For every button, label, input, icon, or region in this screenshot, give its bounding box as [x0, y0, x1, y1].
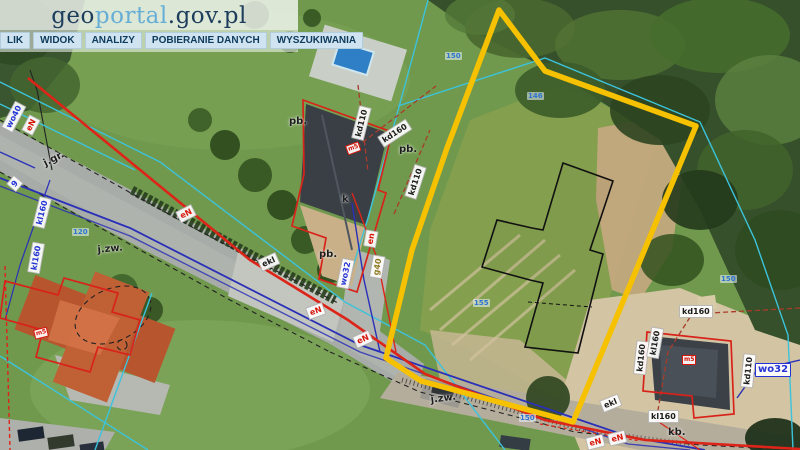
geoportal-logo[interactable]: geoportal.gov.pl — [0, 0, 298, 30]
map-canvas[interactable] — [0, 0, 800, 450]
menu-item-widok[interactable]: WIDOK — [33, 32, 81, 49]
menu-item-analizy[interactable]: ANALIZY — [85, 32, 142, 49]
menu-item-wyszukiwania[interactable]: WYSZUKIWANIA — [270, 32, 363, 49]
menu-bar: LIKWIDOKANALIZYPOBIERANIE DANYCHWYSZUKIW… — [0, 30, 298, 52]
geoportal-map-view[interactable]: wo40eNj.gr.9kl160kl160j.zw.eNeklpb.kpb.k… — [0, 0, 800, 450]
menu-item-pobieranie-danych[interactable]: POBIERANIE DANYCH — [145, 32, 267, 49]
logo-text-portal: portal — [95, 3, 168, 29]
logo-text-govpl: .gov.pl — [168, 3, 247, 29]
logo-text-geo: geo — [51, 3, 95, 29]
header: geoportal.gov.pl LIKWIDOKANALIZYPOBIERAN… — [0, 0, 298, 52]
menu-item-lik[interactable]: LIK — [0, 32, 30, 49]
